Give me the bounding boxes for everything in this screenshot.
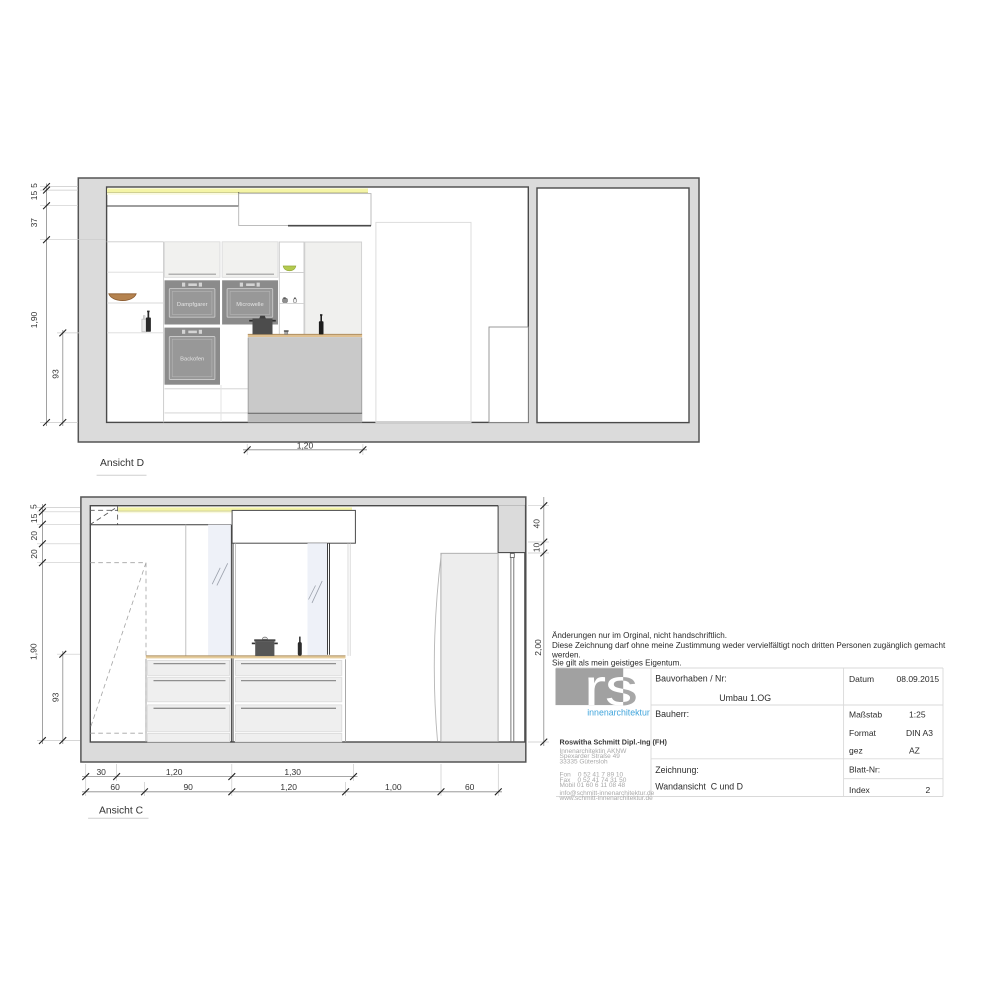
svg-text:Sie gilt als mein geistiges Ei: Sie gilt als mein geistiges Eigentum. <box>552 658 682 667</box>
svg-text:Bauherr:: Bauherr: <box>655 709 689 719</box>
svg-text:15: 15 <box>29 513 39 523</box>
svg-text:Datum: Datum <box>849 674 874 684</box>
svg-text:60: 60 <box>110 782 120 792</box>
svg-text:Microwelle: Microwelle <box>236 302 263 308</box>
svg-text:Maßstab: Maßstab <box>849 709 882 719</box>
svg-text:20: 20 <box>29 549 39 559</box>
svg-text:Dampfgarer: Dampfgarer <box>177 302 208 308</box>
svg-text:Bauvorhaben / Nr:: Bauvorhaben / Nr: <box>655 674 726 684</box>
svg-text:60: 60 <box>465 782 475 792</box>
svg-text:1,90: 1,90 <box>29 643 39 660</box>
svg-text:Ansicht D: Ansicht D <box>100 458 144 469</box>
svg-text:Roswitha Schmitt Dipl.-Ing (FH: Roswitha Schmitt Dipl.-Ing (FH) <box>560 737 668 746</box>
svg-text:Mobil 01 60 6 11 08 48: Mobil 01 60 6 11 08 48 <box>560 782 626 789</box>
svg-text:2: 2 <box>926 785 931 795</box>
svg-text:1,20: 1,20 <box>166 767 183 777</box>
svg-text:Diese Zeichnung darf ohne mein: Diese Zeichnung darf ohne meine Zustimmu… <box>552 641 946 650</box>
svg-text:15: 15 <box>29 191 39 201</box>
svg-text:1,20: 1,20 <box>297 440 314 450</box>
svg-text:90: 90 <box>183 782 193 792</box>
svg-text:30: 30 <box>96 767 106 777</box>
svg-text:Backofen: Backofen <box>180 356 204 362</box>
svg-text:1:25: 1:25 <box>909 709 926 719</box>
svg-text:innenarchitektur: innenarchitektur <box>587 708 650 718</box>
svg-text:Blatt-Nr:: Blatt-Nr: <box>849 765 880 775</box>
svg-text:10: 10 <box>532 543 542 553</box>
svg-text:1,00: 1,00 <box>385 782 402 792</box>
svg-text:93: 93 <box>50 692 60 702</box>
svg-text:08.09.2015: 08.09.2015 <box>897 674 940 684</box>
svg-text:DIN A3: DIN A3 <box>906 728 933 738</box>
svg-text:Format: Format <box>849 728 877 738</box>
svg-text:AZ: AZ <box>909 745 920 755</box>
svg-text:www.schmitt-innenarchitektur.d: www.schmitt-innenarchitektur.de <box>559 795 654 802</box>
svg-text:40: 40 <box>532 519 542 529</box>
svg-text:Index: Index <box>849 785 871 795</box>
svg-text:2,00: 2,00 <box>533 639 543 656</box>
svg-text:gez: gez <box>849 745 863 755</box>
svg-text:Umbau 1.OG: Umbau 1.OG <box>719 693 771 703</box>
svg-text:5: 5 <box>29 504 39 509</box>
svg-text:1,30: 1,30 <box>284 767 301 777</box>
svg-text:1,90: 1,90 <box>29 311 39 328</box>
svg-text:Wandansicht C und D: Wandansicht C und D <box>655 781 743 791</box>
svg-text:20: 20 <box>29 531 39 541</box>
svg-text:37: 37 <box>29 218 39 228</box>
svg-text:93: 93 <box>51 369 61 379</box>
svg-text:Ansicht C: Ansicht C <box>99 806 144 817</box>
svg-text:Änderungen nur im Orginal, nic: Änderungen nur im Orginal, nicht handsch… <box>552 631 727 640</box>
svg-text:1,20: 1,20 <box>280 782 297 792</box>
svg-text:33335 Gütersloh: 33335 Gütersloh <box>560 759 608 766</box>
svg-text:Zeichnung:: Zeichnung: <box>655 765 699 775</box>
svg-text:5: 5 <box>29 183 39 188</box>
